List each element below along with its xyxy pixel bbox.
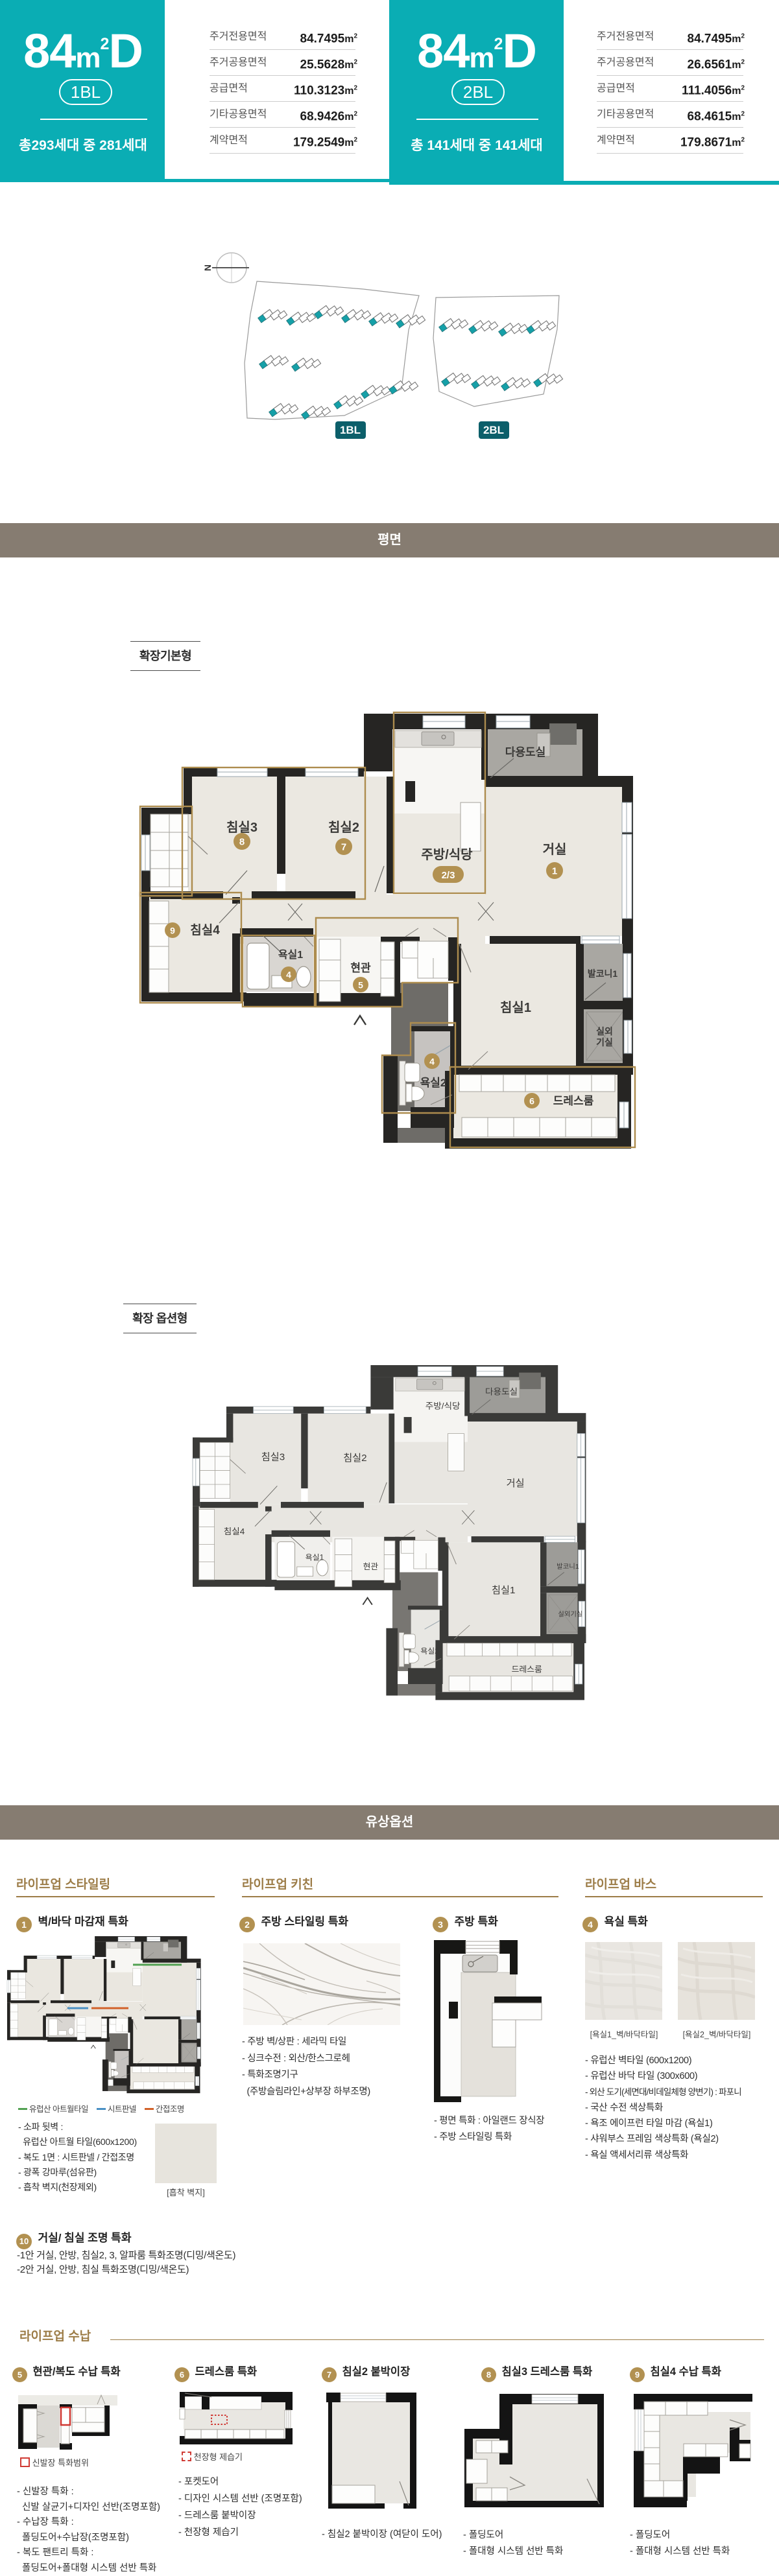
svg-text:드레스룸: 드레스룸 — [553, 1095, 594, 1107]
svg-text:4: 4 — [429, 1057, 435, 1067]
svg-text:침실3: 침실3 — [261, 1452, 285, 1463]
svg-text:현관: 현관 — [363, 1562, 379, 1571]
svg-text:침실2: 침실2 — [343, 1453, 366, 1464]
svg-text:다용도실: 다용도실 — [485, 1387, 518, 1397]
svg-text:욕실1: 욕실1 — [278, 949, 303, 961]
svg-text:4: 4 — [286, 970, 291, 980]
svg-text:1: 1 — [552, 866, 557, 877]
svg-text:8: 8 — [239, 837, 245, 848]
svg-text:주방/식당: 주방/식당 — [421, 847, 473, 862]
svg-text:실외기실: 실외기실 — [558, 1610, 582, 1618]
svg-text:1BL: 1BL — [340, 424, 361, 436]
svg-text:발코니1: 발코니1 — [588, 968, 618, 979]
svg-text:침실4: 침실4 — [224, 1527, 245, 1536]
svg-text:7: 7 — [341, 842, 346, 853]
svg-text:침실2: 침실2 — [328, 820, 359, 835]
svg-text:주방/식당: 주방/식당 — [425, 1401, 461, 1411]
svg-text:실외기실: 실외기실 — [596, 1026, 613, 1048]
svg-text:침실3: 침실3 — [226, 820, 258, 835]
svg-text:욕실2: 욕실2 — [420, 1647, 439, 1656]
svg-text:드레스룸: 드레스룸 — [512, 1665, 542, 1674]
svg-text:현관: 현관 — [350, 962, 371, 974]
svg-text:다용도실: 다용도실 — [505, 746, 546, 758]
svg-text:욕실2: 욕실2 — [420, 1077, 447, 1089]
svg-text:거실: 거실 — [507, 1478, 525, 1489]
svg-text:침실1: 침실1 — [500, 1000, 531, 1015]
svg-text:6: 6 — [529, 1096, 534, 1107]
svg-text:침실4: 침실4 — [190, 923, 220, 937]
svg-text:침실1: 침실1 — [492, 1585, 515, 1596]
svg-text:2/3: 2/3 — [442, 870, 455, 881]
svg-text:9: 9 — [170, 926, 175, 936]
svg-text:욕실1: 욕실1 — [306, 1553, 324, 1562]
svg-text:발코니1: 발코니1 — [557, 1563, 579, 1571]
svg-text:2BL: 2BL — [483, 424, 504, 436]
svg-text:거실: 거실 — [543, 842, 567, 857]
svg-text:N: N — [202, 264, 213, 271]
svg-text:5: 5 — [358, 980, 363, 990]
